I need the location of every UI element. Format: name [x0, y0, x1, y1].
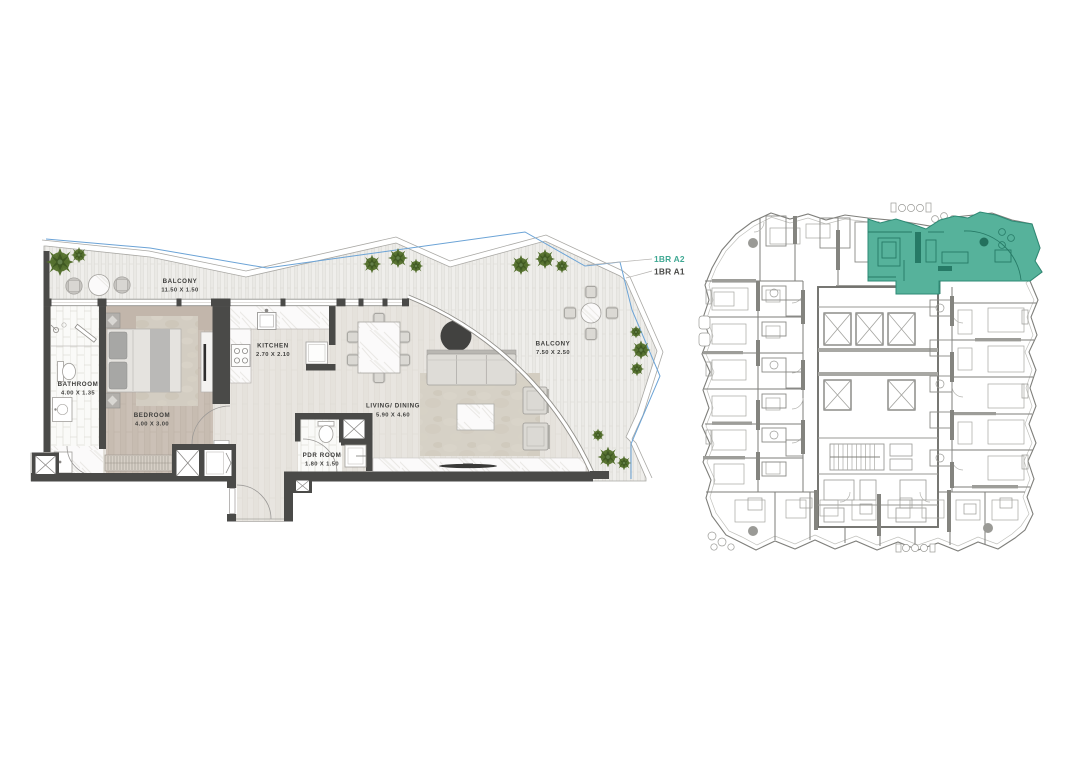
svg-text:BALCONY: BALCONY — [163, 278, 198, 285]
svg-text:BEDROOM: BEDROOM — [134, 412, 171, 419]
svg-text:1.80 X 1.50: 1.80 X 1.50 — [305, 462, 339, 468]
svg-text:LIVING/ DINING: LIVING/ DINING — [366, 403, 420, 410]
svg-text:BALCONY: BALCONY — [536, 341, 571, 348]
svg-text:5.90 X 4.60: 5.90 X 4.60 — [376, 413, 410, 419]
svg-text:7.50 X 2.50: 7.50 X 2.50 — [536, 350, 570, 356]
svg-text:4.00 X 1.35: 4.00 X 1.35 — [61, 391, 95, 397]
svg-text:11.50 X 1.50: 11.50 X 1.50 — [161, 288, 198, 294]
svg-text:BATHROOM: BATHROOM — [58, 381, 99, 388]
svg-text:PDR ROOM: PDR ROOM — [303, 452, 342, 459]
svg-text:4.00 X 3.00: 4.00 X 3.00 — [135, 422, 169, 428]
svg-text:2.70 X 2.10: 2.70 X 2.10 — [256, 352, 290, 358]
svg-text:1BR A2: 1BR A2 — [654, 254, 685, 264]
svg-text:1BR A1: 1BR A1 — [654, 267, 685, 277]
svg-text:KITCHEN: KITCHEN — [257, 343, 289, 350]
